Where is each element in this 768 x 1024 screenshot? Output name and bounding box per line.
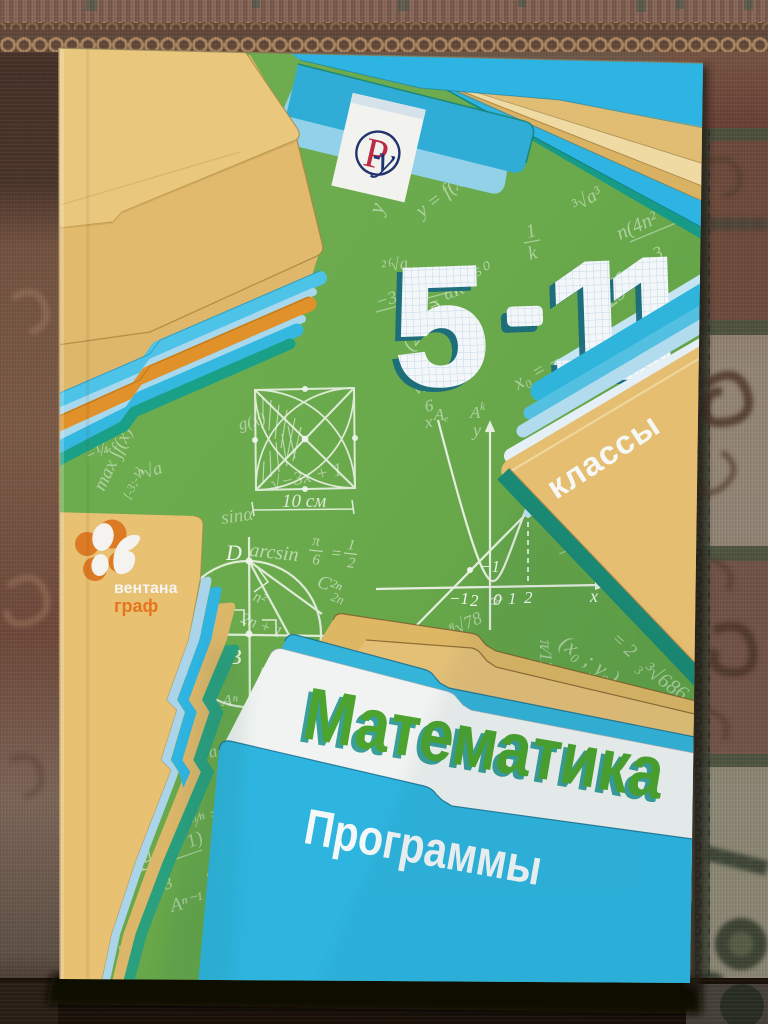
svg-text:=: =: [330, 543, 343, 563]
svg-text:−1: −1: [449, 589, 469, 608]
svg-text:5: 5: [391, 231, 491, 422]
svg-text:10 см: 10 см: [282, 491, 326, 512]
svg-text:граф: граф: [114, 596, 159, 616]
svg-text:вентана: вентана: [114, 580, 178, 597]
svg-text:D: D: [225, 540, 242, 565]
